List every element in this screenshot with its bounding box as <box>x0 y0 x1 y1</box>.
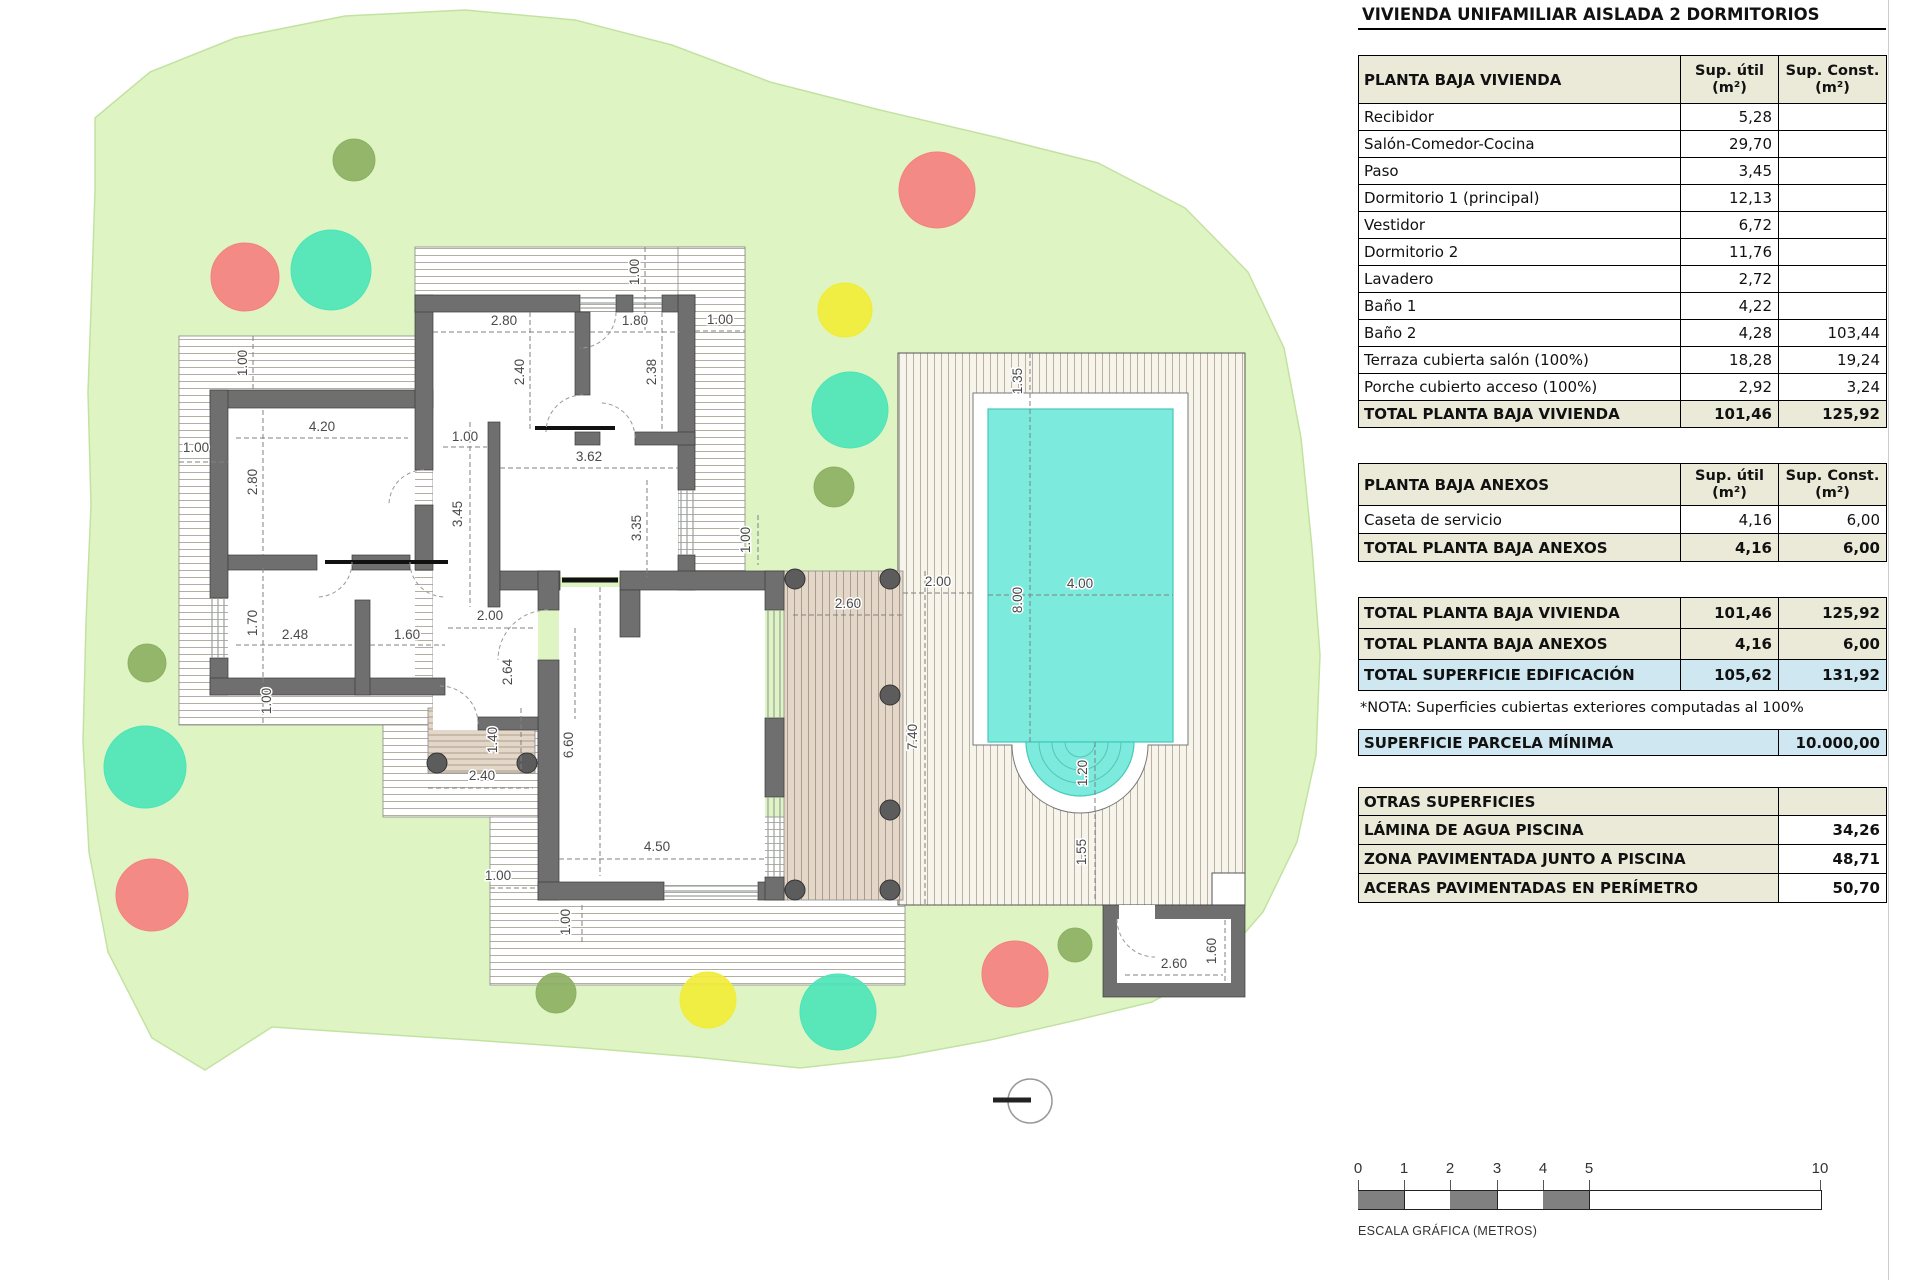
dimension-label: 7.40 <box>905 724 920 750</box>
parcela-value: 10.000,00 <box>1779 730 1887 756</box>
dimension-label: 2.48 <box>282 627 308 642</box>
table-header: OTRAS SUPERFICIES <box>1359 788 1779 816</box>
parcela-label: SUPERFICIE PARCELA MÍNIMA <box>1359 730 1779 756</box>
dimension-label: 2.40 <box>469 768 495 783</box>
dimension-label: 2.00 <box>477 608 503 623</box>
table-total-row: TOTAL PLANTA BAJA VIVIENDA101,46125,92 <box>1359 598 1887 629</box>
dimension-label: 1.00 <box>485 868 511 883</box>
dimension-label: 3.62 <box>576 449 602 464</box>
scale-tick <box>1820 1180 1821 1190</box>
covered-terrace <box>784 571 903 900</box>
scale-tick <box>1404 1180 1405 1190</box>
table-row: ACERAS PAVIMENTADAS EN PERÍMETRO50,70 <box>1359 874 1887 903</box>
table-header: PLANTA BAJA ANEXOS <box>1359 464 1681 506</box>
note-text: *NOTA: Superficies cubiertas exteriores … <box>1360 700 1886 716</box>
table-row: Baño 24,28103,44 <box>1359 320 1887 347</box>
benchmark-symbol <box>993 1079 1052 1123</box>
dimension-label: 1.60 <box>1204 938 1219 964</box>
dimension-label: 1.00 <box>558 909 573 935</box>
dimension-label: 6.60 <box>561 732 576 758</box>
empty-header-cell <box>1779 788 1887 816</box>
table-planta-baja-anexos: PLANTA BAJA ANEXOS Sup. útil(m²) Sup. Co… <box>1358 463 1887 562</box>
tree <box>814 467 854 507</box>
table-row: ZONA PAVIMENTADA JUNTO A PISCINA48,71 <box>1359 845 1887 874</box>
col-header-sup-util: Sup. útil(m²) <box>1681 464 1779 506</box>
page-title: VIVIENDA UNIFAMILIAR AISLADA 2 DORMITORI… <box>1358 0 1886 30</box>
table-row: Salón-Comedor-Cocina29,70 <box>1359 131 1887 158</box>
scale-caption: ESCALA GRÁFICA (METROS) <box>1358 1224 1537 1238</box>
table-row: Terraza cubierta salón (100%)18,2819,24 <box>1359 347 1887 374</box>
col-header-sup-const: Sup. Const.(m²) <box>1779 464 1887 506</box>
table-row: LÁMINA DE AGUA PISCINA34,26 <box>1359 816 1887 845</box>
table-row: Recibidor5,28 <box>1359 104 1887 131</box>
dimension-label: 1.00 <box>259 688 274 714</box>
scale-tick <box>1450 1180 1451 1190</box>
dimension-label: 1.00 <box>738 527 753 553</box>
table-row: Caseta de servicio4,166,00 <box>1359 506 1887 534</box>
tree <box>680 972 736 1028</box>
scale-tick-label: 4 <box>1528 1160 1558 1177</box>
dimension-label: 4.20 <box>309 419 335 434</box>
dimension-label: 4.00 <box>1067 576 1093 591</box>
scale-tick <box>1543 1180 1544 1190</box>
dimension-label: 4.50 <box>644 839 670 854</box>
dimension-label: 1.00 <box>452 429 478 444</box>
scale-tick <box>1358 1180 1359 1190</box>
scale-tick-label: 3 <box>1482 1160 1512 1177</box>
tree <box>800 974 876 1050</box>
dimension-label: 1.35 <box>1010 368 1025 394</box>
dimension-label: 1.80 <box>622 313 648 328</box>
page: { "title": "VIVIENDA UNIFAMILIAR AISLADA… <box>0 0 1920 1280</box>
sheet-divider <box>1888 0 1889 1280</box>
tree <box>291 230 371 310</box>
table-header: PLANTA BAJA VIVIENDA <box>1359 56 1681 104</box>
scale-bar <box>1358 1190 1822 1210</box>
scale-tick-label: 2 <box>1435 1160 1465 1177</box>
scale-tick <box>1497 1180 1498 1190</box>
table-row: Lavadero2,72 <box>1359 266 1887 293</box>
tree <box>982 941 1048 1007</box>
dimension-label: 2.60 <box>1161 956 1187 971</box>
dimension-label: 1.20 <box>1075 760 1090 786</box>
table-row: Baño 14,22 <box>1359 293 1887 320</box>
dimension-label: 2.40 <box>512 359 527 385</box>
dimension-label: 2.38 <box>644 359 659 385</box>
col-header-sup-util: Sup. útil(m²) <box>1681 56 1779 104</box>
table-row: Porche cubierto acceso (100%)2,923,24 <box>1359 374 1887 401</box>
graphic-scale: ESCALA GRÁFICA (METROS) 01234510 <box>1358 1160 1858 1260</box>
dimension-label: 1.00 <box>627 259 642 285</box>
tree <box>536 973 576 1013</box>
scale-tick-label: 1 <box>1389 1160 1419 1177</box>
scale-tick <box>1589 1180 1590 1190</box>
dimension-label: 1.70 <box>245 610 260 636</box>
dimension-label: 1.60 <box>394 627 420 642</box>
table-parcela-minima: SUPERFICIE PARCELA MÍNIMA 10.000,00 <box>1358 729 1887 756</box>
dimension-label: 2.80 <box>245 469 260 495</box>
table-row: Dormitorio 211,76 <box>1359 239 1887 266</box>
dimension-label: 2.00 <box>925 574 951 589</box>
tree <box>899 152 975 228</box>
tree <box>333 139 375 181</box>
dimension-label: 1.55 <box>1074 839 1089 865</box>
table-total-row: TOTAL PLANTA BAJA ANEXOS4,166,00 <box>1359 534 1887 562</box>
table-row: Vestidor6,72 <box>1359 212 1887 239</box>
scale-bar-segment <box>1358 1190 1405 1210</box>
col-header-sup-const: Sup. Const.(m²) <box>1779 56 1887 104</box>
dimension-label: 1.40 <box>485 727 500 753</box>
dimension-label: 3.45 <box>450 501 465 527</box>
table-total-row: TOTAL PLANTA BAJA ANEXOS4,166,00 <box>1359 629 1887 660</box>
tree <box>818 283 872 337</box>
tree <box>1058 928 1092 962</box>
table-row: Dormitorio 1 (principal)12,13 <box>1359 185 1887 212</box>
tree <box>812 372 888 448</box>
scale-tick-label: 0 <box>1343 1160 1373 1177</box>
dimension-label: 1.00 <box>707 312 733 327</box>
table-totals-summary: TOTAL PLANTA BAJA VIVIENDA101,46125,92TO… <box>1358 597 1887 691</box>
dimension-label: 8.00 <box>1010 587 1025 613</box>
scale-tick-label: 10 <box>1805 1160 1835 1177</box>
tree <box>104 726 186 808</box>
scale-bar-segment <box>1543 1190 1590 1210</box>
tree <box>116 859 188 931</box>
service-shed <box>1103 905 1245 997</box>
dimension-label: 2.60 <box>835 596 861 611</box>
table-otras-superficies: OTRAS SUPERFICIES LÁMINA DE AGUA PISCINA… <box>1358 787 1887 903</box>
table-total-row: TOTAL PLANTA BAJA VIVIENDA101,46125,92 <box>1359 401 1887 428</box>
tree <box>128 644 166 682</box>
dimension-label: 2.80 <box>491 313 517 328</box>
dimension-label: 1.00 <box>183 440 209 455</box>
tree <box>211 243 279 311</box>
table-total-row: TOTAL SUPERFICIE EDIFICACIÓN105,62131,92 <box>1359 660 1887 691</box>
table-planta-baja-vivienda: PLANTA BAJA VIVIENDA Sup. útil(m²) Sup. … <box>1358 55 1887 428</box>
scale-bar-segment <box>1450 1190 1498 1210</box>
table-row: Paso3,45 <box>1359 158 1887 185</box>
dimension-label: 1.00 <box>235 350 250 376</box>
scale-tick-label: 5 <box>1574 1160 1604 1177</box>
dimension-label: 2.64 <box>500 658 515 685</box>
dimension-label: 3.35 <box>629 515 644 541</box>
